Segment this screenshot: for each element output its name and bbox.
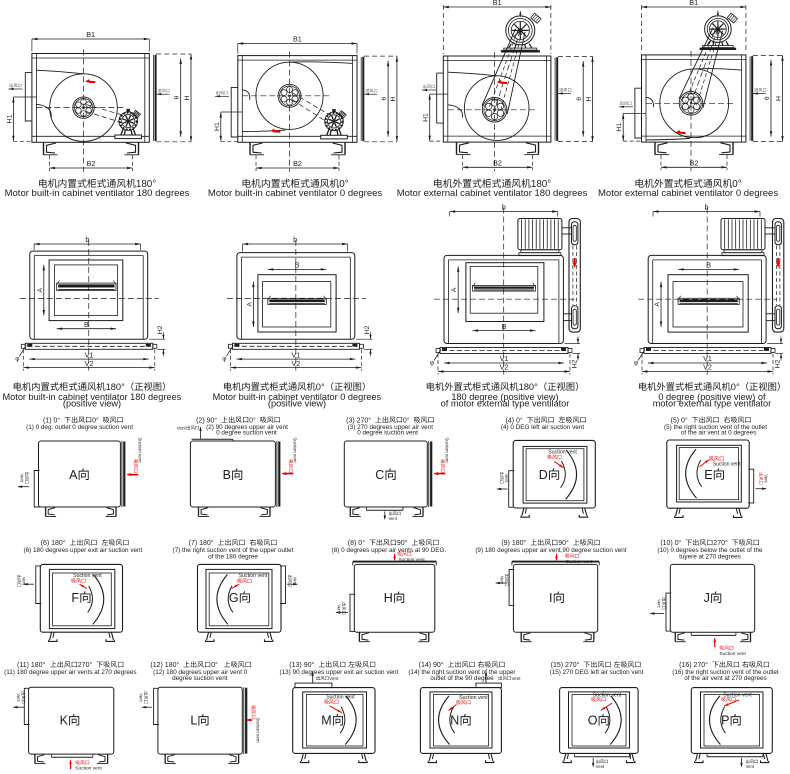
svg-text:B: B bbox=[502, 322, 507, 331]
svg-text:(12) 180°: (12) 180° bbox=[150, 661, 179, 669]
svg-text:0°: 0° bbox=[211, 661, 218, 669]
svg-text:of motor external type ventila: of motor external type ventilator bbox=[441, 399, 570, 409]
svg-text:Vent: Vent bbox=[504, 474, 509, 483]
svg-text:(1) 0 deg. outlet 0 degree suc: (1) 0 deg. outlet 0 degree suction vent bbox=[26, 424, 133, 431]
svg-text:φ: φ bbox=[15, 355, 19, 362]
svg-text:θ: θ bbox=[764, 96, 771, 100]
svg-text:Suction vent: Suction vent bbox=[73, 573, 102, 579]
svg-text:of the 180 degree: of the 180 degree bbox=[208, 553, 258, 560]
svg-text:E: E bbox=[704, 468, 712, 482]
svg-text:L: L bbox=[190, 714, 197, 728]
svg-text:Suction vent: Suction vent bbox=[459, 695, 488, 701]
svg-text:(13) 90 degrees upper exit air: (13) 90 degrees upper exit air suction v… bbox=[280, 669, 399, 676]
svg-text:Suction vent: Suction vent bbox=[398, 557, 425, 563]
svg-text:I: I bbox=[549, 591, 552, 605]
svg-text:(15) 270 DEG left air suction: (15) 270 DEG left air suction vent bbox=[550, 669, 644, 676]
svg-text:H1: H1 bbox=[616, 123, 623, 132]
svg-text:0 degree suction vent: 0 degree suction vent bbox=[357, 430, 418, 437]
svg-text:0°: 0° bbox=[316, 382, 325, 392]
svg-text:J: J bbox=[704, 591, 710, 605]
svg-text:Vent: Vent bbox=[763, 474, 768, 483]
svg-text:A: A bbox=[451, 287, 458, 292]
svg-text:Motor built-in cabinet ventila: Motor built-in cabinet ventilator 0 degr… bbox=[208, 188, 383, 199]
svg-text:B1: B1 bbox=[86, 30, 95, 39]
svg-text:B: B bbox=[295, 261, 300, 270]
svg-text:M: M bbox=[321, 714, 331, 728]
svg-text:B1: B1 bbox=[293, 35, 302, 44]
svg-text:V2: V2 bbox=[292, 359, 301, 368]
svg-text:90°: 90° bbox=[397, 539, 408, 547]
svg-text:0 degree suction vent: 0 degree suction vent bbox=[216, 430, 277, 437]
svg-text:Vent: Vent bbox=[596, 764, 605, 769]
svg-text:Vent: Vent bbox=[16, 693, 21, 702]
svg-text:B: B bbox=[223, 468, 231, 482]
svg-text:degree suction vent: degree suction vent bbox=[172, 675, 228, 682]
svg-text:Motor external cabinet ventila: Motor external cabinet ventilator 0 degr… bbox=[598, 188, 778, 199]
svg-text:Suction vent: Suction vent bbox=[75, 766, 102, 772]
svg-text:outlet of the 90 degree: outlet of the 90 degree bbox=[430, 675, 494, 682]
svg-text:b: b bbox=[502, 203, 506, 212]
svg-text:G: G bbox=[229, 591, 239, 605]
svg-text:(14) 90°: (14) 90° bbox=[419, 661, 444, 669]
svg-text:P: P bbox=[721, 714, 729, 728]
svg-text:φ: φ bbox=[430, 360, 434, 367]
svg-text:B1: B1 bbox=[689, 0, 698, 7]
svg-text:Vent: Vent bbox=[20, 474, 25, 483]
svg-text:H: H bbox=[184, 95, 191, 100]
svg-text:C: C bbox=[375, 468, 384, 482]
svg-text:φ: φ bbox=[222, 355, 226, 362]
svg-text:A: A bbox=[69, 468, 78, 482]
svg-text:tuyere at 270 degrees: tuyere at 270 degrees bbox=[679, 553, 741, 560]
svg-text:(9) 180°: (9) 180° bbox=[501, 539, 526, 547]
svg-text:(15) 270°: (15) 270° bbox=[551, 661, 580, 669]
svg-text:motor external type ventilator: motor external type ventilator bbox=[653, 399, 771, 409]
svg-text:K: K bbox=[60, 714, 69, 728]
svg-text:Vent: Vent bbox=[500, 576, 505, 585]
svg-text:H2: H2 bbox=[157, 325, 164, 334]
svg-text:180°: 180° bbox=[106, 382, 126, 392]
svg-text:D: D bbox=[539, 468, 548, 482]
svg-text:F: F bbox=[71, 591, 79, 605]
svg-text:H1: H1 bbox=[6, 115, 13, 124]
svg-text:(11) 180 degree upper air vent: (11) 180 degree upper air vents at 270 d… bbox=[4, 669, 136, 676]
svg-text:Suction vent: Suction vent bbox=[255, 717, 260, 743]
svg-text:Vent: Vent bbox=[177, 425, 187, 430]
svg-text:A: A bbox=[246, 302, 253, 307]
svg-text:Vent: Vent bbox=[512, 676, 522, 681]
svg-text:B: B bbox=[706, 261, 711, 270]
svg-text:Suction vent: Suction vent bbox=[548, 449, 577, 455]
svg-text:180°: 180° bbox=[519, 382, 539, 392]
svg-text:(11) 180°: (11) 180° bbox=[17, 661, 46, 669]
svg-text:B2: B2 bbox=[293, 159, 302, 168]
svg-text:of the air vent at 270 degrees: of the air vent at 270 degrees bbox=[684, 675, 767, 682]
svg-text:Suction vent: Suction vent bbox=[445, 437, 450, 463]
svg-text:H: H bbox=[586, 97, 593, 102]
svg-text:Suction vent: Suction vent bbox=[138, 437, 143, 463]
svg-text:(7) 180°: (7) 180° bbox=[189, 539, 214, 547]
svg-text:270°: 270° bbox=[713, 539, 728, 547]
svg-text:A: A bbox=[654, 302, 661, 307]
svg-text:V2: V2 bbox=[85, 359, 94, 368]
svg-text:N: N bbox=[450, 714, 459, 728]
svg-text:(6) 180 degrees upper exit air: (6) 180 degrees upper exit air suction v… bbox=[24, 547, 143, 554]
svg-text:B: B bbox=[84, 320, 89, 329]
svg-text:of the air vent at 0 degrees: of the air vent at 0 degrees bbox=[681, 430, 756, 437]
svg-text:B2: B2 bbox=[690, 159, 699, 168]
svg-text:φ: φ bbox=[634, 360, 638, 367]
svg-text:(positive view): (positive view) bbox=[268, 399, 326, 409]
svg-text:B1: B1 bbox=[493, 0, 502, 7]
svg-text:Vent: Vent bbox=[746, 764, 755, 769]
svg-text:Suction vent: Suction vent bbox=[566, 559, 593, 565]
svg-text:(positive view): (positive view) bbox=[63, 399, 121, 409]
svg-text:H2: H2 bbox=[572, 359, 579, 368]
svg-text:θ: θ bbox=[576, 97, 583, 101]
svg-text:(8) 0 degrees upper air vents: (8) 0 degrees upper air vents at 90 DEG. bbox=[332, 547, 447, 554]
svg-text:Vent: Vent bbox=[389, 516, 398, 521]
svg-text:B2: B2 bbox=[87, 159, 96, 168]
svg-text:(16) 270°: (16) 270° bbox=[679, 661, 708, 669]
svg-text:Suction vent: Suction vent bbox=[713, 462, 741, 468]
svg-text:V2: V2 bbox=[703, 363, 712, 372]
svg-text:Suction vent: Suction vent bbox=[239, 573, 268, 579]
svg-text:270°: 270° bbox=[78, 661, 93, 669]
svg-text:O: O bbox=[588, 714, 598, 728]
svg-text:Suction vent: Suction vent bbox=[719, 651, 746, 657]
svg-text:Vent: Vent bbox=[329, 676, 339, 681]
svg-text:B2: B2 bbox=[493, 159, 502, 168]
svg-text:90°: 90° bbox=[558, 539, 569, 547]
svg-text:(13) 90°: (13) 90° bbox=[289, 661, 314, 669]
svg-text:b: b bbox=[85, 235, 89, 244]
svg-text:A: A bbox=[37, 288, 44, 293]
svg-text:V2: V2 bbox=[500, 363, 509, 372]
svg-text:H: H bbox=[776, 96, 783, 101]
svg-text:Vent: Vent bbox=[139, 693, 144, 702]
svg-text:Suction vent: Suction vent bbox=[293, 437, 298, 463]
svg-text:b: b bbox=[293, 235, 297, 244]
svg-text:Motor external cabinet ventila: Motor external cabinet ventilator 180 de… bbox=[397, 188, 588, 199]
svg-text:(4) 0 DEG left air suction ven: (4) 0 DEG left air suction vent bbox=[501, 424, 584, 431]
svg-text:(8) 0°: (8) 0° bbox=[348, 539, 365, 547]
svg-text:θ: θ bbox=[174, 96, 181, 100]
svg-text:H2: H2 bbox=[775, 359, 782, 368]
svg-text:H1: H1 bbox=[214, 122, 221, 131]
svg-text:H2: H2 bbox=[364, 325, 371, 334]
svg-text:H1: H1 bbox=[423, 113, 430, 122]
svg-text:H: H bbox=[390, 96, 397, 101]
svg-text:(9) 180 degrees upper air vent: (9) 180 degrees upper air vent,90 degree… bbox=[475, 547, 627, 554]
svg-text:(6) 180°: (6) 180° bbox=[41, 539, 66, 547]
svg-text:Motor built-in cabinet ventila: Motor built-in cabinet ventilator 180 de… bbox=[5, 188, 190, 199]
svg-text:(10) 0°: (10) 0° bbox=[660, 539, 681, 547]
svg-text:θ: θ bbox=[381, 97, 388, 101]
svg-text:0°: 0° bbox=[731, 382, 740, 392]
svg-text:Vent: Vent bbox=[657, 599, 662, 608]
svg-text:b: b bbox=[705, 203, 709, 212]
svg-text:H: H bbox=[384, 591, 393, 605]
